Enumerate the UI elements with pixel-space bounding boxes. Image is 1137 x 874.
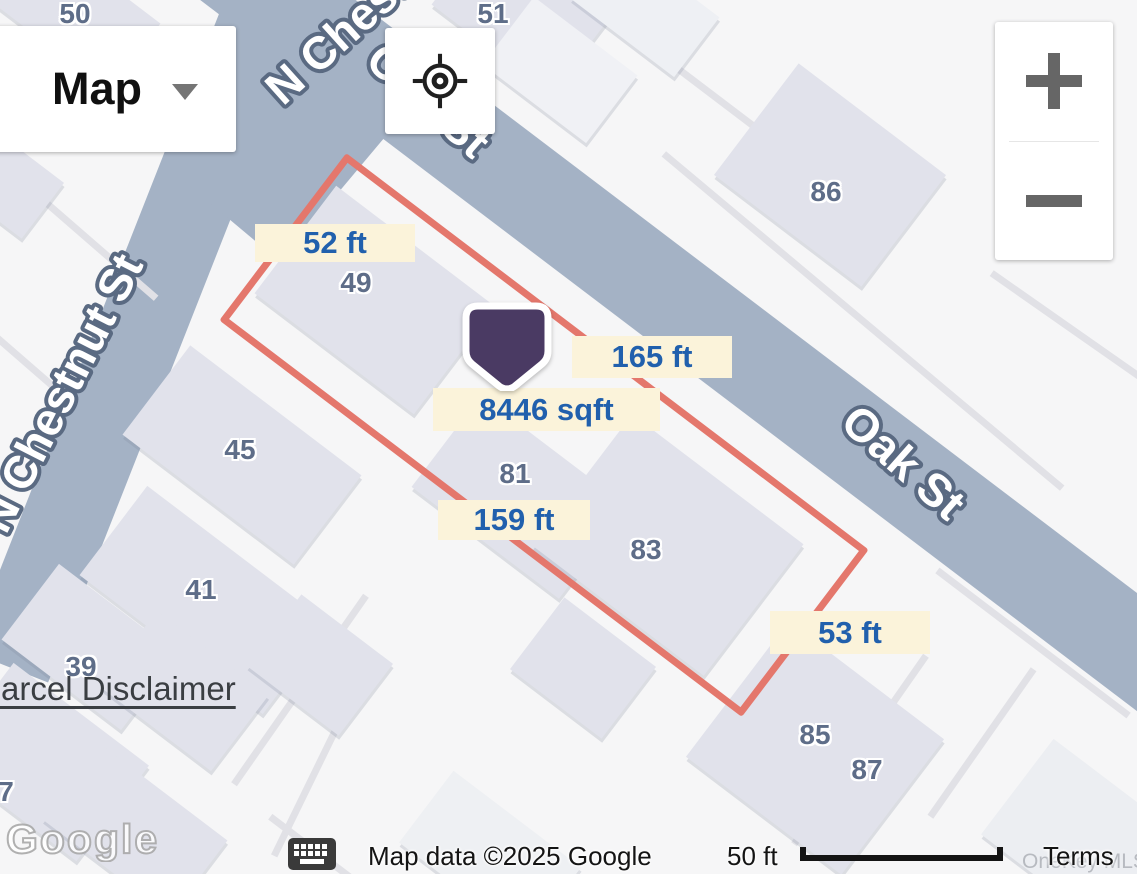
parcel-area-label: 8446 sqft	[433, 388, 660, 431]
crosshair-icon	[411, 52, 469, 110]
keyboard-shortcuts-icon[interactable]	[288, 838, 336, 870]
property-marker-icon[interactable]	[458, 299, 556, 391]
lot-line	[0, 317, 76, 408]
house-number: 87	[851, 754, 882, 786]
lot-line	[990, 270, 1137, 413]
google-logo[interactable]: Google	[6, 816, 159, 863]
house-number: 85	[799, 719, 830, 751]
house-number: 81	[499, 458, 530, 490]
map-type-button[interactable]: Map	[0, 26, 236, 152]
house-number: 83	[630, 534, 661, 566]
house-number: 7	[0, 776, 14, 808]
minus-icon	[1026, 195, 1082, 207]
dimension-label-top: 52 ft	[255, 224, 415, 262]
terms-link[interactable]: Terms	[1043, 841, 1114, 872]
zoom-in-button[interactable]	[995, 22, 1113, 140]
zoom-control	[995, 22, 1113, 260]
scale-label: 50 ft	[727, 841, 778, 872]
house-number: 45	[224, 434, 255, 466]
chevron-down-icon	[172, 84, 198, 100]
map-data-attribution: Map data ©2025 Google	[368, 841, 652, 872]
house-number: 49	[340, 267, 371, 299]
dimension-label-bottom: 53 ft	[770, 611, 930, 654]
dimension-label-left: 159 ft	[438, 500, 590, 540]
house-number: 41	[185, 574, 216, 606]
plus-icon	[1048, 53, 1060, 109]
dimension-label-right: 165 ft	[572, 336, 732, 378]
house-number: 51	[477, 0, 508, 30]
map-type-label: Map	[52, 63, 142, 115]
my-location-button[interactable]	[385, 28, 495, 134]
parcel-disclaimer-link[interactable]: Parcel Disclaimer	[0, 670, 236, 708]
house-number: 86	[810, 176, 841, 208]
building	[714, 63, 946, 286]
zoom-out-button[interactable]	[995, 141, 1113, 259]
scale-bar	[800, 847, 1003, 861]
map-canvas[interactable]: N Chestnut St N Chestnut St Oak St Oak S…	[0, 0, 1137, 874]
keyboard-icon	[288, 838, 336, 870]
